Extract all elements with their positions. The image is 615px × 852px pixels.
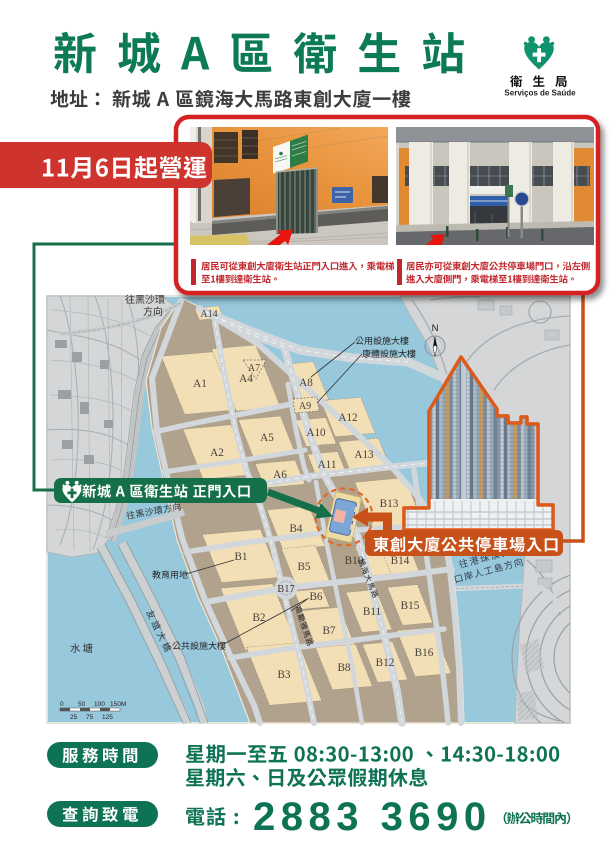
svg-text:A13: A13 bbox=[354, 449, 374, 461]
svg-text:25: 25 bbox=[70, 714, 78, 721]
svg-text:B6: B6 bbox=[309, 591, 322, 603]
svg-text:B3: B3 bbox=[277, 669, 290, 681]
svg-text:150M: 150M bbox=[110, 701, 126, 708]
svg-text:100: 100 bbox=[94, 701, 105, 708]
svg-text:B8: B8 bbox=[337, 662, 350, 674]
svg-text:B5: B5 bbox=[297, 561, 310, 573]
svg-text:75: 75 bbox=[86, 714, 94, 721]
svg-text:B12: B12 bbox=[376, 657, 395, 669]
svg-text:2883 3690: 2883 3690 bbox=[253, 795, 492, 839]
svg-text:N: N bbox=[432, 323, 439, 334]
svg-text:B13: B13 bbox=[380, 498, 399, 510]
svg-text:A12: A12 bbox=[338, 412, 357, 424]
svg-text:50: 50 bbox=[78, 701, 86, 708]
svg-text:A5: A5 bbox=[260, 432, 274, 444]
svg-text:125: 125 bbox=[102, 714, 113, 721]
svg-text:B7: B7 bbox=[322, 625, 335, 637]
svg-text:0: 0 bbox=[60, 701, 64, 708]
svg-text:A1: A1 bbox=[193, 378, 207, 390]
svg-text:B17: B17 bbox=[277, 584, 295, 595]
svg-text:B15: B15 bbox=[401, 600, 420, 612]
svg-text:A6: A6 bbox=[273, 469, 287, 481]
svg-text:B1: B1 bbox=[234, 551, 247, 563]
svg-text:A2: A2 bbox=[210, 447, 224, 459]
svg-text:A14: A14 bbox=[200, 309, 217, 320]
svg-text:A10: A10 bbox=[306, 427, 326, 439]
svg-text:A11: A11 bbox=[318, 459, 337, 471]
svg-text:A9: A9 bbox=[299, 401, 311, 412]
svg-text:B4: B4 bbox=[289, 523, 302, 535]
svg-text:B11: B11 bbox=[363, 606, 381, 618]
svg-text:B16: B16 bbox=[415, 647, 434, 659]
svg-text:A7: A7 bbox=[248, 363, 260, 374]
svg-text:Serviços de Saúde: Serviços de Saúde bbox=[504, 89, 576, 98]
svg-text:A4: A4 bbox=[239, 373, 253, 385]
svg-text:B14: B14 bbox=[391, 555, 410, 567]
svg-text:A8: A8 bbox=[299, 377, 313, 389]
